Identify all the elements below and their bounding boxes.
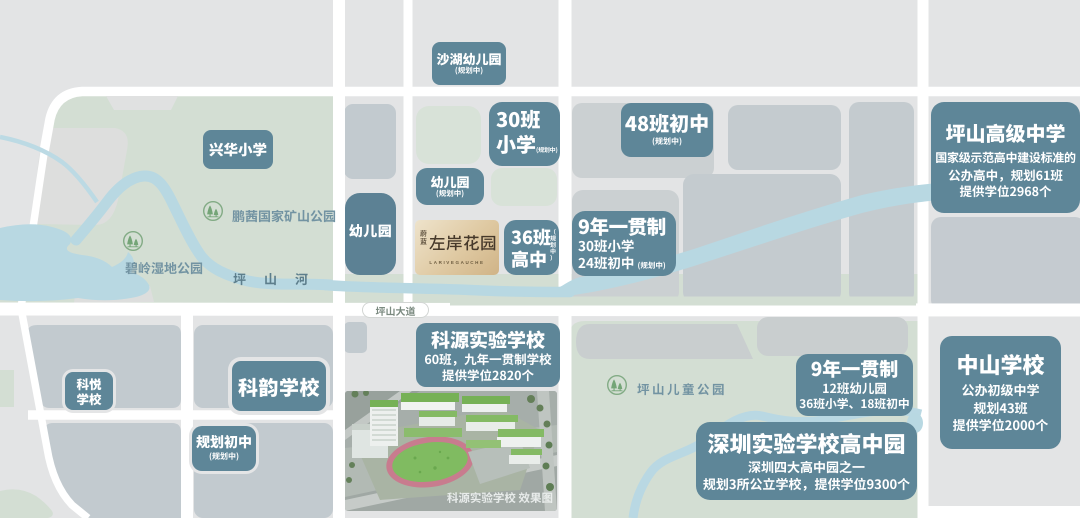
svg-text:科源实验学校 效果图: 科源实验学校 效果图 [447, 490, 553, 506]
svg-text:坪山河: 坪山河 [233, 269, 326, 288]
